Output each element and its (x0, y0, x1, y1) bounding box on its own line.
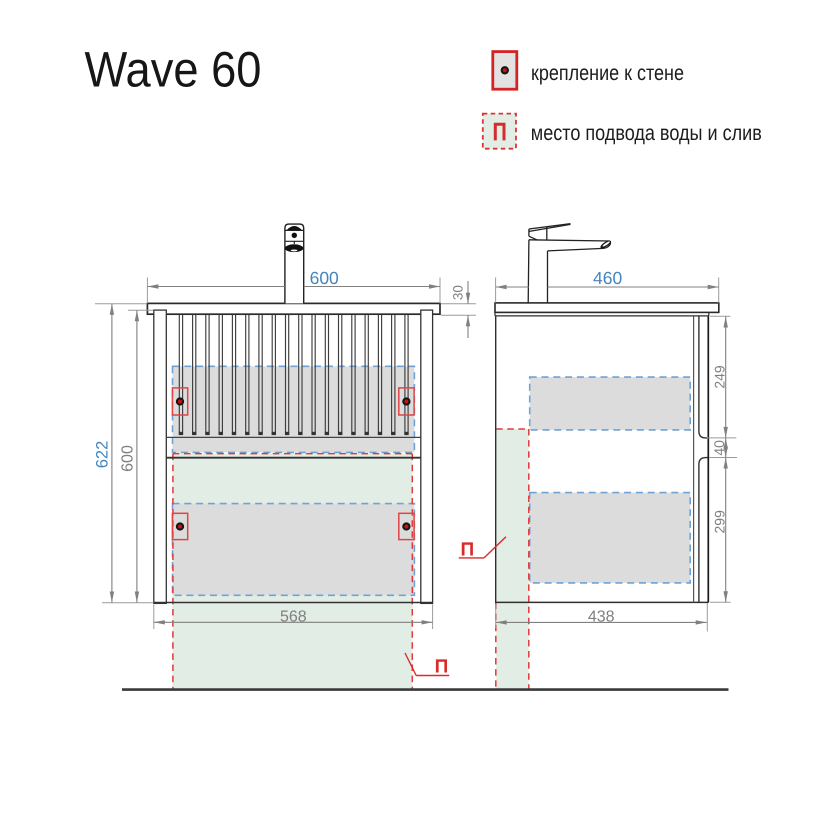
svg-text:438: 438 (588, 609, 615, 626)
svg-text:место подвода воды и слив: место подвода воды и слив (531, 121, 762, 145)
svg-text:249: 249 (711, 365, 727, 389)
svg-text:крепление к стене: крепление к стене (531, 61, 684, 85)
svg-text:622: 622 (94, 441, 112, 469)
svg-text:40: 40 (711, 440, 727, 456)
svg-text:Wave 60: Wave 60 (85, 42, 262, 98)
svg-text:568: 568 (280, 609, 307, 626)
svg-text:460: 460 (593, 268, 622, 288)
svg-text:П: П (460, 539, 474, 560)
svg-text:30: 30 (451, 285, 466, 300)
svg-text:600: 600 (310, 268, 339, 288)
svg-text:П: П (435, 657, 449, 678)
svg-text:600: 600 (119, 445, 136, 472)
svg-text:299: 299 (711, 510, 727, 534)
